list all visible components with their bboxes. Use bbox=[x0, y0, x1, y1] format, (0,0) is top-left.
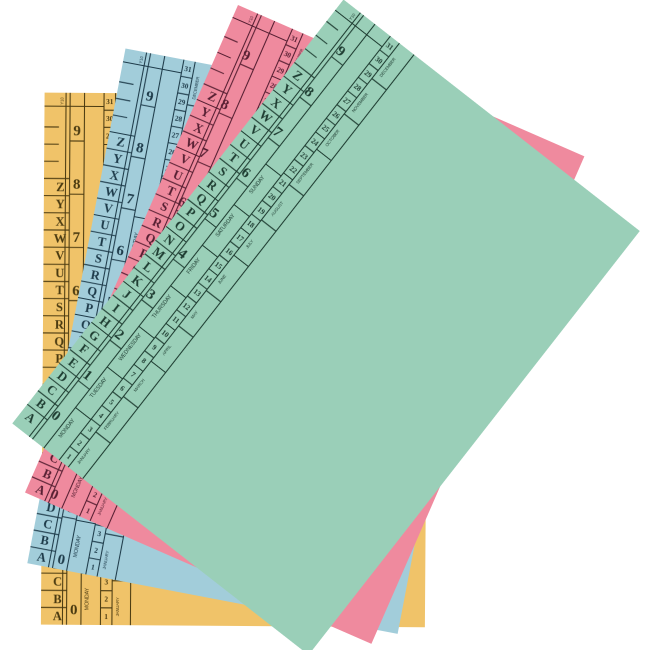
svg-text:1: 1 bbox=[104, 613, 108, 621]
svg-text:R: R bbox=[55, 317, 65, 331]
svg-text:U: U bbox=[55, 266, 64, 280]
svg-text:JANUARY: JANUARY bbox=[115, 597, 120, 616]
svg-text:B: B bbox=[53, 592, 61, 606]
svg-text:31: 31 bbox=[106, 98, 114, 106]
svg-text:2: 2 bbox=[104, 596, 108, 604]
svg-text:8: 8 bbox=[73, 177, 81, 193]
svg-text:V: V bbox=[55, 249, 64, 263]
svg-text:3: 3 bbox=[105, 579, 109, 587]
svg-text:S: S bbox=[56, 300, 63, 314]
svg-text:0: 0 bbox=[70, 602, 78, 618]
svg-text:MONDAY: MONDAY bbox=[84, 587, 90, 610]
svg-text:Q: Q bbox=[54, 335, 64, 349]
svg-text:7: 7 bbox=[73, 230, 81, 246]
svg-text:A: A bbox=[53, 609, 62, 623]
svg-text:W: W bbox=[54, 232, 67, 246]
svg-text:T: T bbox=[55, 283, 64, 297]
svg-text:Z: Z bbox=[56, 180, 64, 194]
svg-text:Y: Y bbox=[56, 197, 65, 211]
svg-text:C: C bbox=[53, 575, 62, 589]
svg-text:X: X bbox=[56, 214, 65, 228]
svg-text:Y10: Y10 bbox=[60, 97, 65, 105]
svg-text:9: 9 bbox=[73, 124, 81, 140]
